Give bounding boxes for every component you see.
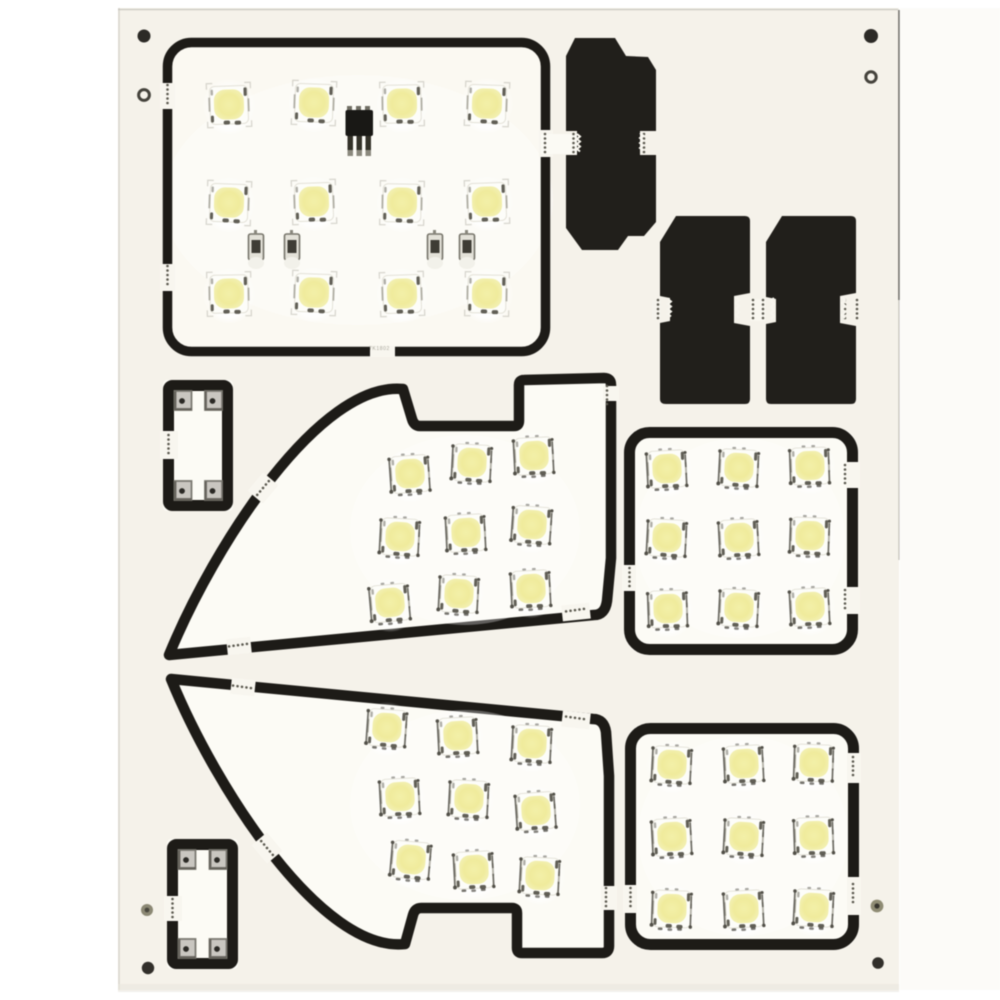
svg-text:7K1802: 7K1802 xyxy=(369,346,390,352)
